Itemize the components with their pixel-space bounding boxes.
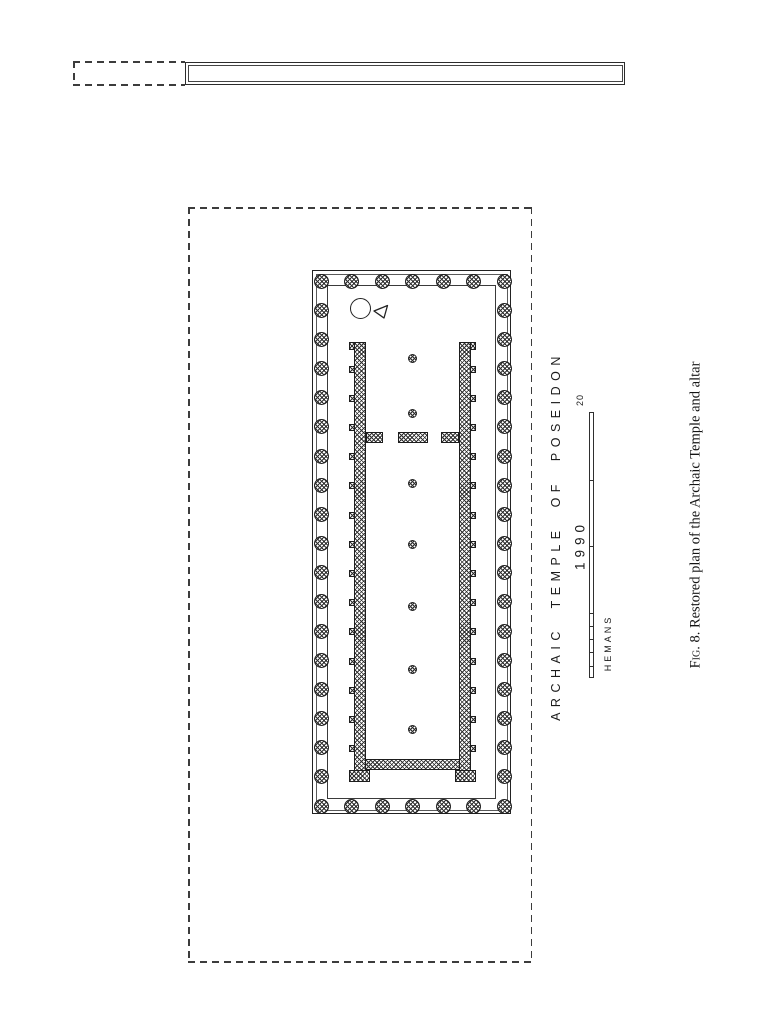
scale-max-label: 20: [575, 394, 585, 406]
wall-buttress: [470, 482, 476, 489]
peristyle-column: [497, 419, 512, 434]
wall-buttress: [349, 424, 355, 431]
figure-page: ARCHAIC TEMPLE OF POSEIDON 1990 20 HEMAN…: [0, 0, 762, 1024]
wall-buttress: [470, 628, 476, 635]
wall-buttress: [349, 570, 355, 577]
peristyle-column: [497, 565, 512, 580]
precinct-edge-bottom: [188, 961, 532, 963]
wall-buttress: [470, 687, 476, 694]
figure-caption: Fig. 8. Restored plan of the Archaic Tem…: [688, 362, 705, 669]
peristyle-column: [497, 332, 512, 347]
peristyle-column: [314, 361, 329, 376]
scale-tick-major: [590, 480, 593, 481]
peristyle-column: [314, 507, 329, 522]
peristyle-column: [497, 624, 512, 639]
peristyle-column: [466, 799, 481, 814]
credit-label: HEMANS: [603, 615, 613, 672]
peristyle-column: [314, 624, 329, 639]
axial-column: [408, 725, 417, 734]
altar-body-inner-line: [188, 65, 623, 82]
peristyle-column: [344, 274, 359, 289]
peristyle-column: [314, 682, 329, 697]
temple-plan: [312, 270, 511, 814]
peristyle-column: [497, 507, 512, 522]
scale-tick-major: [590, 546, 593, 547]
wall-buttress: [470, 366, 476, 373]
peristyle-column: [314, 274, 329, 289]
peristyle-column: [405, 274, 420, 289]
peristyle-column: [314, 653, 329, 668]
peristyle-column: [314, 565, 329, 580]
peristyle-column: [314, 303, 329, 318]
wall-buttress: [349, 745, 355, 752]
peristyle-column: [497, 711, 512, 726]
cella-wall-left: [354, 342, 366, 782]
wall-buttress: [349, 687, 355, 694]
partition-center-block: [398, 432, 428, 443]
peristyle-column: [314, 740, 329, 755]
wall-buttress: [470, 395, 476, 402]
wall-buttress: [349, 395, 355, 402]
scale-tick-minor: [590, 639, 593, 640]
wall-buttress: [349, 599, 355, 606]
precinct-edge-right: [531, 207, 533, 963]
altar-body: [185, 62, 625, 85]
wall-buttress: [470, 453, 476, 460]
wall-buttress: [349, 366, 355, 373]
peristyle-column: [314, 799, 329, 814]
peristyle-column: [314, 711, 329, 726]
altar-plan: [0, 0, 762, 110]
wall-buttress: [349, 628, 355, 635]
peristyle-column: [375, 799, 390, 814]
axial-column: [408, 540, 417, 549]
peristyle-column: [314, 419, 329, 434]
altar-dashed-edge-top: [73, 61, 185, 63]
scale-tick-minor: [590, 626, 593, 627]
wall-buttress: [470, 541, 476, 548]
peristyle-column: [497, 769, 512, 784]
altar-dashed-edge-left: [73, 61, 75, 85]
peristyle-column: [497, 799, 512, 814]
scale-bar: [589, 412, 594, 678]
round-feature: [350, 298, 371, 319]
altar-dashed-edge-bottom: [73, 84, 185, 86]
wall-buttress: [470, 716, 476, 723]
precinct-edge-top: [188, 207, 532, 209]
wall-buttress: [470, 570, 476, 577]
wall-buttress: [349, 716, 355, 723]
partition-spur-left: [366, 432, 383, 443]
axial-column: [408, 354, 417, 363]
peristyle-column: [344, 799, 359, 814]
wall-buttress: [349, 512, 355, 519]
wall-buttress: [349, 541, 355, 548]
axial-column: [408, 665, 417, 674]
wall-buttress: [470, 745, 476, 752]
peristyle-column: [497, 361, 512, 376]
rear-cross-wall: [365, 759, 460, 770]
peristyle-column: [497, 274, 512, 289]
peristyle-column: [497, 682, 512, 697]
wall-buttress: [349, 658, 355, 665]
peristyle-column: [497, 478, 512, 493]
wall-buttress: [349, 453, 355, 460]
peristyle-column: [497, 536, 512, 551]
scale-tick-major: [590, 613, 593, 614]
partition-spur-right: [441, 432, 459, 443]
precinct-edge-left: [188, 207, 190, 963]
peristyle-column: [314, 536, 329, 551]
peristyle-column: [497, 653, 512, 668]
peristyle-column: [375, 274, 390, 289]
peristyle-column: [314, 332, 329, 347]
peristyle-column: [466, 274, 481, 289]
wall-buttress: [349, 482, 355, 489]
peristyle-column: [314, 449, 329, 464]
peristyle-column: [314, 769, 329, 784]
wall-buttress: [470, 599, 476, 606]
wall-foot-left: [349, 770, 370, 782]
anta-foot-left: [349, 342, 355, 350]
wall-buttress: [470, 424, 476, 431]
scale-tick-minor: [590, 652, 593, 653]
scale-tick-minor: [590, 666, 593, 667]
peristyle-column: [314, 390, 329, 405]
peristyle-column: [497, 303, 512, 318]
peristyle-column: [314, 594, 329, 609]
caption-figure-number: Fig. 8.: [688, 632, 704, 669]
axial-column: [408, 479, 417, 488]
peristyle-column: [405, 799, 420, 814]
anta-foot-right: [470, 342, 476, 350]
caption-text: Restored plan of the Archaic Temple and …: [688, 362, 704, 632]
peristyle-column: [497, 449, 512, 464]
peristyle-column: [436, 799, 451, 814]
peristyle-column: [436, 274, 451, 289]
peristyle-column: [497, 390, 512, 405]
axial-column: [408, 409, 417, 418]
peristyle-column: [314, 478, 329, 493]
triangle-feature: [371, 301, 391, 321]
wall-foot-right: [455, 770, 476, 782]
wall-buttress: [470, 512, 476, 519]
axial-column: [408, 602, 417, 611]
wall-buttress: [470, 658, 476, 665]
plan-title: ARCHAIC TEMPLE OF POSEIDON: [549, 351, 563, 721]
plan-year: 1990: [573, 520, 588, 570]
peristyle-column: [497, 740, 512, 755]
peristyle-column: [497, 594, 512, 609]
